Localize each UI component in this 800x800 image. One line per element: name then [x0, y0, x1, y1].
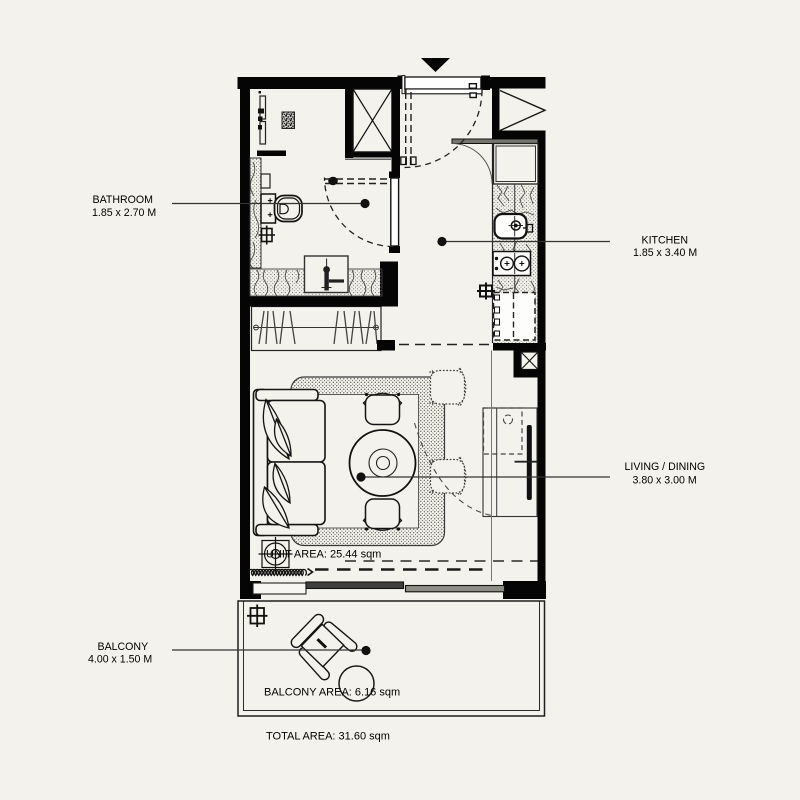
svg-text:3.80 x 3.00 M: 3.80 x 3.00 M [633, 475, 697, 487]
svg-text:1.85 x 3.40 M: 1.85 x 3.40 M [633, 247, 697, 259]
svg-text:TOTAL AREA: 31.60 sqm: TOTAL AREA: 31.60 sqm [266, 730, 390, 742]
svg-text:1.85 x 2.70 M: 1.85 x 2.70 M [92, 207, 156, 219]
svg-text:KITCHEN: KITCHEN [642, 234, 689, 246]
svg-text:4.00 x 1.50 M: 4.00 x 1.50 M [88, 654, 152, 666]
svg-text:BATHROOM: BATHROOM [93, 194, 153, 206]
svg-text:BALCONY AREA: 6.16 sqm: BALCONY AREA: 6.16 sqm [264, 686, 400, 698]
svg-text:BALCONY: BALCONY [98, 641, 149, 653]
svg-text:LIVING / DINING: LIVING / DINING [625, 461, 706, 473]
